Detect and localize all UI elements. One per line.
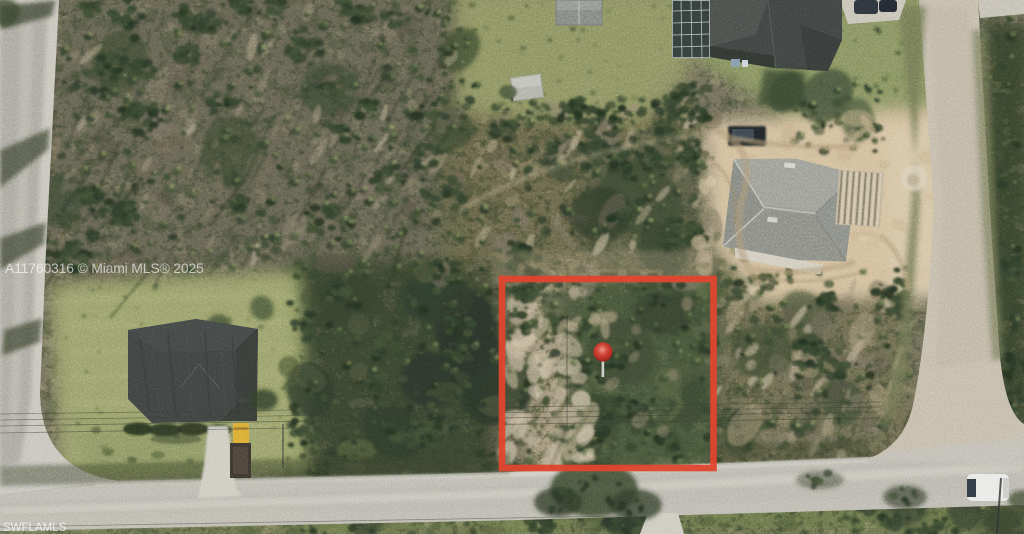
- svg-text:SWFLAMLS: SWFLAMLS: [3, 522, 67, 534]
- svg-text:A11760316 © Miami MLS® 2025: A11760316 © Miami MLS® 2025: [5, 260, 204, 276]
